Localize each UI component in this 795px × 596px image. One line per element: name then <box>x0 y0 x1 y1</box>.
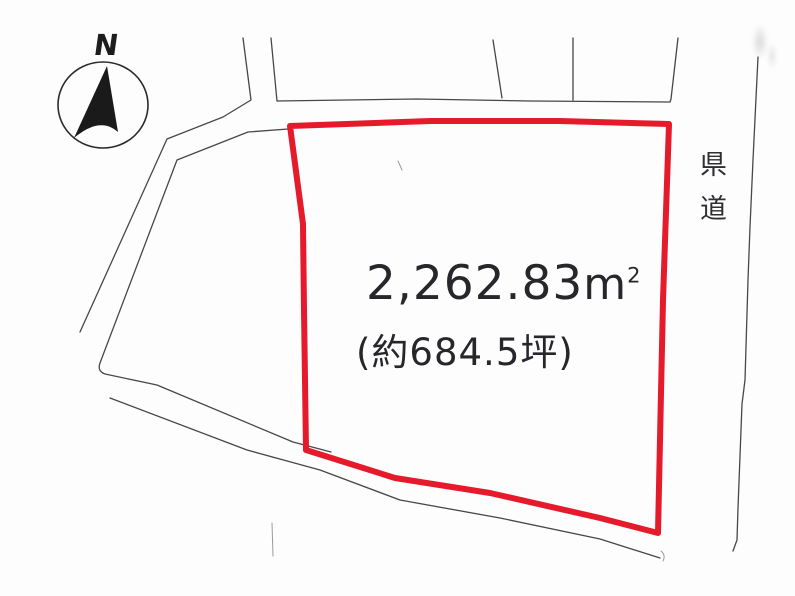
road-edge-line <box>733 57 758 551</box>
road-label: 県道 <box>692 150 731 238</box>
boundary-line-top <box>277 38 678 102</box>
compass-needle-icon <box>74 66 118 138</box>
scan-speck-1 <box>398 161 402 170</box>
area-exponent: 2 <box>627 263 641 287</box>
boundary-tick-left <box>271 38 277 101</box>
survey-mark-dash <box>272 523 273 556</box>
scan-speck-2 <box>661 551 664 561</box>
boundary-tick-middle <box>493 40 502 98</box>
plot-area-tsubo-label: (約684.5坪) <box>356 322 574 376</box>
area-value: 2,262.83 <box>366 256 583 311</box>
plot-area-label: 2,262.83m2 <box>366 256 642 311</box>
north-label: N <box>92 28 121 62</box>
area-unit: m <box>583 259 627 310</box>
land-plot-map: N 2,262.83m2 (約684.5坪) 県道 <box>0 0 795 596</box>
boundary-line-south <box>110 398 660 558</box>
